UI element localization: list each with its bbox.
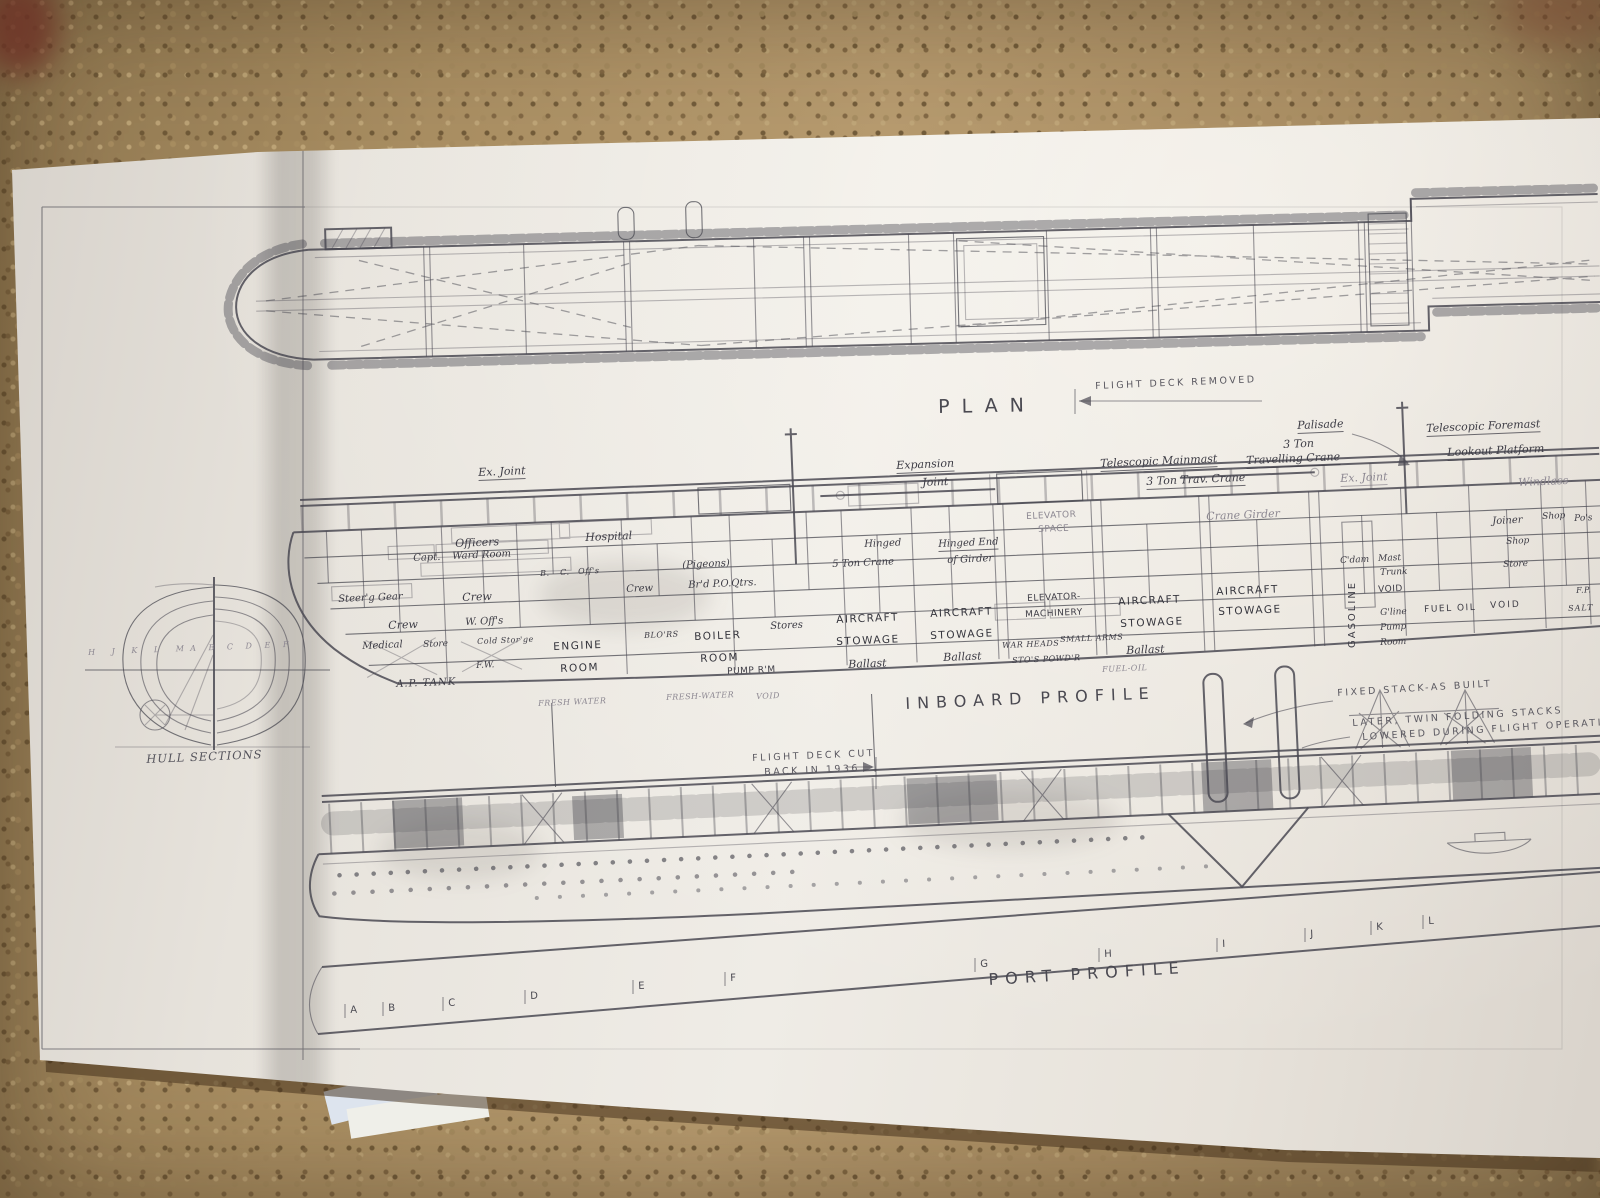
- comp-boiler-room: ROOM: [700, 651, 739, 665]
- comp-officers: Officers: [455, 535, 499, 550]
- label-hinged: Hinged: [864, 537, 902, 550]
- comp-b: B.: [540, 569, 550, 578]
- comp-ballast-2: Ballast: [943, 649, 982, 664]
- comp-pump-rm: PUMP R'M: [727, 665, 776, 677]
- blueprint-drawing: [0, 0, 1600, 1198]
- comp-boiler: BOILER: [694, 629, 742, 643]
- station-d: D: [530, 991, 538, 1002]
- comp-gline-room: Room: [1380, 637, 1407, 648]
- comp-gline: G'line: [1380, 607, 1407, 618]
- carpet-dark-patch-right: [1500, 0, 1600, 45]
- comp-blowers: BLO'RS: [644, 630, 679, 640]
- blueprint-paper: PLAN FLIGHT DECK REMOVED INBOARD PROFILE…: [0, 0, 1600, 1198]
- label-expansion: Expansion: [896, 457, 954, 474]
- label-hinged-end: Hinged End: [938, 536, 999, 552]
- comp-void-3: VOID: [756, 691, 780, 701]
- label-palisade: Palisade: [1297, 417, 1344, 434]
- comp-gline-pump: Pump: [1380, 622, 1407, 633]
- comp-joiner: Joiner: [1492, 515, 1523, 527]
- comp-void-2: VOID: [1490, 600, 1521, 611]
- comp-joiner-store: Store: [1503, 559, 1528, 570]
- comp-w-offs: W. Off's: [465, 615, 503, 628]
- carpet-dark-patch: [0, 0, 57, 75]
- comp-capt: Capt.: [413, 552, 441, 564]
- station-e: E: [638, 981, 645, 992]
- label-joint: Joint: [922, 475, 949, 489]
- plan-title: PLAN: [938, 394, 1036, 418]
- comp-engine-room: ROOM: [560, 661, 599, 675]
- comp-trunk: Trunk: [1380, 567, 1408, 578]
- station-b: B: [388, 1003, 395, 1014]
- comp-crew-1: Crew: [462, 590, 492, 604]
- station-g: G: [980, 959, 988, 970]
- station-c: C: [448, 998, 455, 1009]
- comp-cdam: C'dam: [1340, 555, 1369, 566]
- comp-ballast-3: Ballast: [1126, 642, 1165, 657]
- comp-store: Store: [423, 639, 448, 650]
- label-elevator-space-1: ELEVATOR: [1026, 510, 1077, 522]
- comp-c: C.: [560, 568, 570, 577]
- comp-fp: F.P.: [1576, 585, 1592, 595]
- comp-void-1: VOID: [1378, 584, 1403, 595]
- label-3ton: 3 Ton: [1283, 437, 1314, 451]
- station-k: K: [1376, 922, 1383, 933]
- comp-offs: Off's: [578, 566, 600, 576]
- photo-of-blueprint: PLAN FLIGHT DECK REMOVED INBOARD PROFILE…: [0, 0, 1600, 1198]
- comp-crew-2: Crew: [388, 618, 418, 632]
- comp-engine: ENGINE: [553, 639, 603, 653]
- comp-ballast-1: Ballast: [848, 656, 887, 671]
- comp-fuel-oil-2: FUEL-OIL: [1102, 663, 1148, 674]
- hull-sections-drawing: [85, 577, 330, 750]
- comp-mast: Mast: [1378, 553, 1401, 564]
- label-windlass: Windlass: [1518, 474, 1569, 489]
- station-j: J: [1310, 929, 1313, 940]
- comp-medical: Medical: [362, 639, 403, 652]
- label-ex-joint-2: Ex. Joint: [1340, 470, 1388, 487]
- station-f: F: [730, 973, 736, 984]
- station-l: L: [1428, 916, 1434, 927]
- station-i: I: [1222, 939, 1225, 950]
- label-ex-joint: Ex. Joint: [478, 464, 526, 481]
- station-a: A: [350, 1005, 357, 1016]
- label-of-girder: of Girder: [947, 553, 993, 566]
- comp-crew-po: Crew: [626, 583, 653, 595]
- comp-joiner-shop: Shop: [1506, 536, 1530, 547]
- comp-pigeons: (Pigeons): [682, 558, 730, 571]
- comp-stores: Stores: [770, 620, 803, 632]
- comp-salt: SALT: [1568, 603, 1594, 613]
- comp-pos: Po's: [1574, 513, 1593, 524]
- station-h: H: [1104, 949, 1112, 960]
- label-elevator-space-2: SPACE: [1038, 524, 1069, 535]
- comp-fw: F.W.: [476, 660, 495, 671]
- comp-shop-2: Shop: [1542, 511, 1566, 522]
- comp-hospital: Hospital: [585, 529, 632, 544]
- comp-gasoline: GASOLINE: [1347, 581, 1358, 648]
